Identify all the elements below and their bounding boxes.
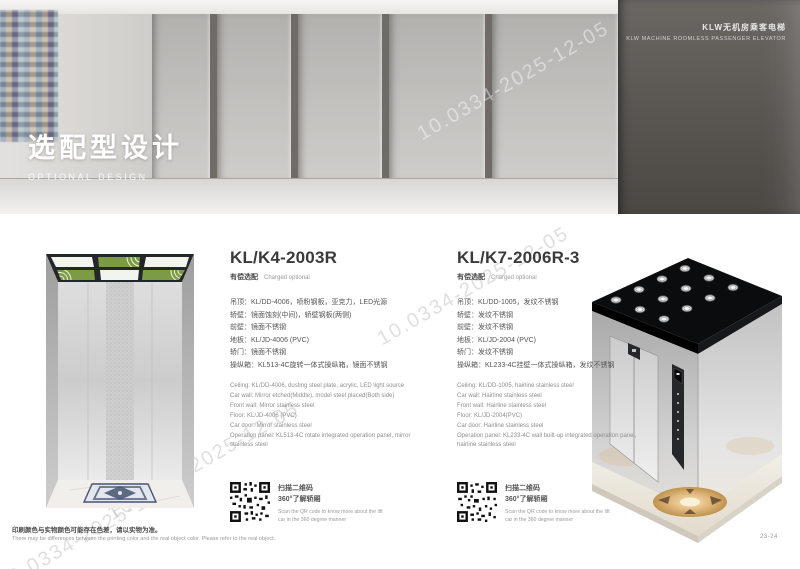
spec-line: 地板：KL/JD-2004 (PVC)	[457, 335, 655, 348]
spec-line: 轿门：镜面不锈钢	[230, 347, 428, 360]
spec-line: Floor: KL/JD-4006 (PVC)	[230, 412, 428, 421]
qr-code	[457, 482, 497, 522]
qr-caption-en: Scan the QR code to know more about the …	[505, 509, 615, 524]
product-badge: 有偿选配 Charged optional	[457, 272, 655, 282]
spec-line: Ceiling: KL/DD-4006, dusting steel plate…	[230, 382, 428, 391]
disclaimer-cn: 印刷颜色与实物颜色可能存在色差，请以实物为准。	[12, 524, 275, 534]
section-title-cn: 选配型设计	[28, 126, 183, 165]
qr-block: 扫描二维码 360°了解轿厢 Scan the QR code to know …	[230, 482, 388, 524]
wall-panel	[298, 14, 382, 180]
spec-line: Car wall: Mirror etched(Middle), model s…	[230, 392, 428, 401]
specs-english: Ceiling: KL/DD-1005, hairline stainless …	[457, 382, 655, 450]
spec-line: 前壁：镜面不锈钢	[230, 322, 428, 335]
badge-cn: 有偿选配	[230, 272, 258, 282]
qr-caption-en: Scan the QR code to know more about the …	[278, 509, 388, 524]
qr-caption-cn-1: 扫描二维码	[278, 484, 388, 495]
car-operation-panel	[672, 364, 684, 470]
qr-caption: 扫描二维码 360°了解轿厢 Scan the QR code to know …	[505, 482, 615, 524]
spec-line: 地板：KL/JD-4006 (PVC)	[230, 335, 428, 348]
spec-line: 轿壁：镜面蚀刻(中间)，轿壁钢板(两侧)	[230, 310, 428, 323]
product-block-kl-k7-2006r-3: KL/K7-2006R-3 有偿选配 Charged optional 吊顶：K…	[457, 248, 655, 540]
wall-panel	[492, 14, 618, 180]
spec-line: Car wall: Hairline stainless steel	[457, 392, 655, 401]
document-header: KLW无机房乘客电梯 KLW MACHINE ROOMLESS PASSENGE…	[626, 22, 786, 42]
elevator-cab-photo-kl-k4-2003r	[30, 250, 210, 528]
spec-line: Operation panel: KL513-4C rotate integra…	[230, 432, 428, 450]
spec-line: Front wall: Mirror stainless steel	[230, 402, 428, 411]
hero-lobby-photo: 选配型设计 OPTIONAL DESIGN KLW无机房乘客电梯 KLW MAC…	[0, 0, 800, 214]
catalog-page: 选配型设计 OPTIONAL DESIGN KLW无机房乘客电梯 KLW MAC…	[0, 0, 800, 569]
document-header-en: KLW MACHINE ROOMLESS PASSENGER ELEVATOR	[626, 36, 786, 42]
wall-panel	[389, 14, 485, 180]
spec-line: 吊顶：KL/DD-1005，发纹不锈钢	[457, 297, 655, 310]
lobby-ceiling	[0, 0, 620, 15]
document-header-cn: KLW无机房乘客电梯	[626, 22, 786, 33]
page-number: 23-24	[760, 534, 778, 540]
cab-right-wall	[182, 254, 194, 508]
spec-line: 操纵箱：KL513-4C旋转一体式操纵箱，镜面不锈钢	[230, 360, 428, 373]
spec-line: 轿门：发纹不锈钢	[457, 347, 655, 360]
spec-line: 吊顶：KL/DD-4006，喷粉钢板，亚克力，LED光源	[230, 297, 428, 310]
wall-panel	[217, 14, 291, 180]
floor-medallion	[84, 484, 156, 502]
spec-line: Floor: KL/JD-2004(PVC)	[457, 412, 655, 421]
floor-medallion	[653, 487, 727, 517]
color-disclaimer: 印刷颜色与实物颜色可能存在色差，请以实物为准。 There may be dif…	[12, 524, 275, 542]
badge-cn: 有偿选配	[457, 272, 485, 282]
qr-caption-cn-2: 360°了解轿厢	[278, 495, 388, 506]
qr-caption-cn-2: 360°了解轿厢	[505, 495, 615, 506]
spec-line: 轿壁：发纹不锈钢	[457, 310, 655, 323]
disclaimer-en: There may be differences between the pri…	[12, 536, 275, 542]
qr-caption: 扫描二维码 360°了解轿厢 Scan the QR code to know …	[278, 482, 388, 524]
section-title: 选配型设计 OPTIONAL DESIGN	[28, 126, 183, 182]
badge-en: Charged optional	[491, 275, 537, 281]
lobby-floor	[0, 178, 620, 214]
spec-line: Operation panel: KL233-4C wall built-up …	[457, 432, 655, 450]
lobby-wall-panels	[152, 14, 618, 180]
product-model: KL/K7-2006R-3	[457, 248, 655, 268]
product-badge: 有偿选配 Charged optional	[230, 272, 428, 282]
product-model: KL/K4-2003R	[230, 248, 428, 268]
qr-caption-cn-1: 扫描二维码	[505, 484, 615, 495]
spec-line: 操纵箱：KL233-4C挂壁一体式操纵箱，发纹不锈钢	[457, 360, 655, 373]
specs-english: Ceiling: KL/DD-4006, dusting steel plate…	[230, 382, 428, 450]
cab-left-wall	[46, 254, 58, 508]
qr-code	[230, 482, 270, 522]
spec-line: Car door: Hairline stainless steel	[457, 422, 655, 431]
section-title-en: OPTIONAL DESIGN	[28, 172, 183, 182]
specs-chinese: 吊顶：KL/DD-1005，发纹不锈钢 轿壁：发纹不锈钢 前壁：发纹不锈钢 地板…	[457, 297, 655, 373]
badge-en: Charged optional	[264, 275, 310, 281]
spec-line: Ceiling: KL/DD-1005, hairline stainless …	[457, 382, 655, 391]
product-block-kl-k4-2003r: KL/K4-2003R 有偿选配 Charged optional 吊顶：KL/…	[230, 248, 428, 540]
spec-line: Car door: Mirror stainless steel	[230, 422, 428, 431]
spec-line: Front wall: Hairline stainless steel	[457, 402, 655, 411]
specs-chinese: 吊顶：KL/DD-4006，喷粉钢板，亚克力，LED光源 轿壁：镜面蚀刻(中间)…	[230, 297, 428, 373]
qr-block: 扫描二维码 360°了解轿厢 Scan the QR code to know …	[457, 482, 615, 524]
spec-line: 前壁：发纹不锈钢	[457, 322, 655, 335]
mosaic-wall-art	[0, 10, 58, 142]
